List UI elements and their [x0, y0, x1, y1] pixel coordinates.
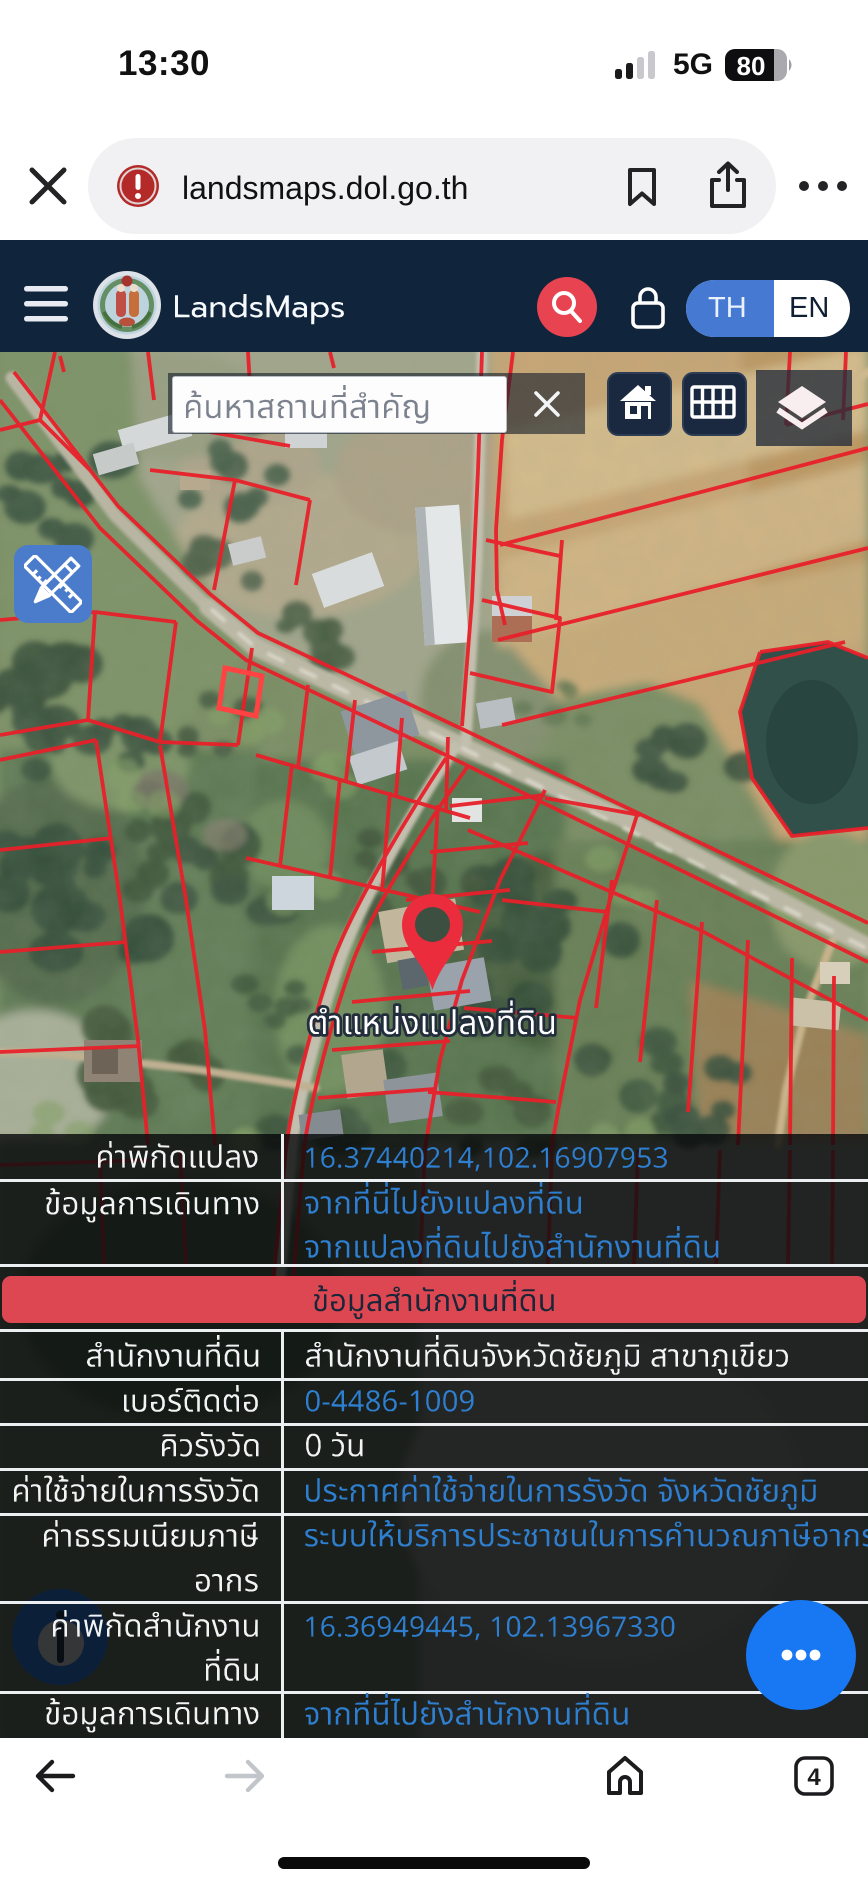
svg-text:4: 4: [807, 1764, 821, 1791]
svg-text:80: 80: [737, 51, 766, 81]
